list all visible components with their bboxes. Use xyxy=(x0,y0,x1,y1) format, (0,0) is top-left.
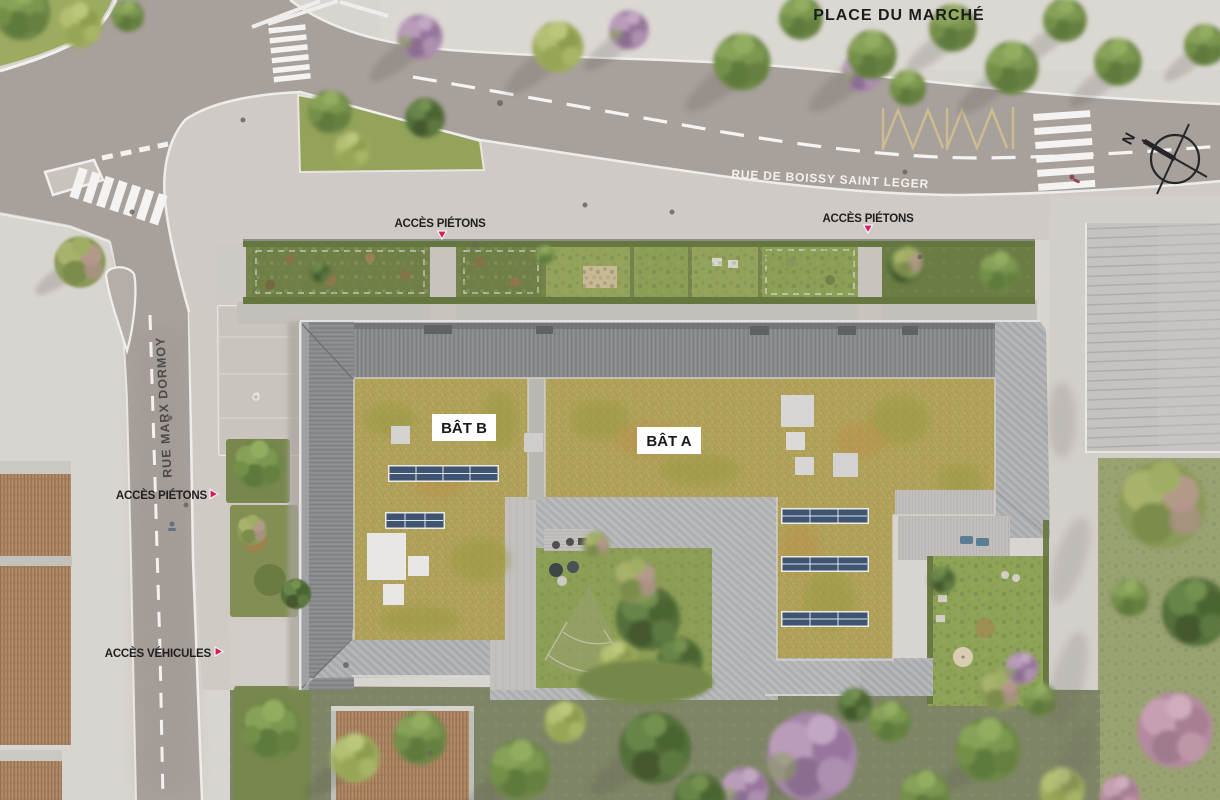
svg-text:BÂT A: BÂT A xyxy=(646,432,691,450)
svg-text:ACCÈS PIÉTONS: ACCÈS PIÉTONS xyxy=(394,217,486,230)
svg-text:ACCÈS PIÉTONS: ACCÈS PIÉTONS xyxy=(822,212,914,225)
svg-text:ACCÈS PIÉTONS: ACCÈS PIÉTONS xyxy=(116,489,208,502)
svg-text:PLACE DU MARCHÉ: PLACE DU MARCHÉ xyxy=(813,5,984,24)
svg-text:ACCÈS VÉHICULES: ACCÈS VÉHICULES xyxy=(105,647,212,660)
svg-text:BÂT B: BÂT B xyxy=(441,419,487,437)
